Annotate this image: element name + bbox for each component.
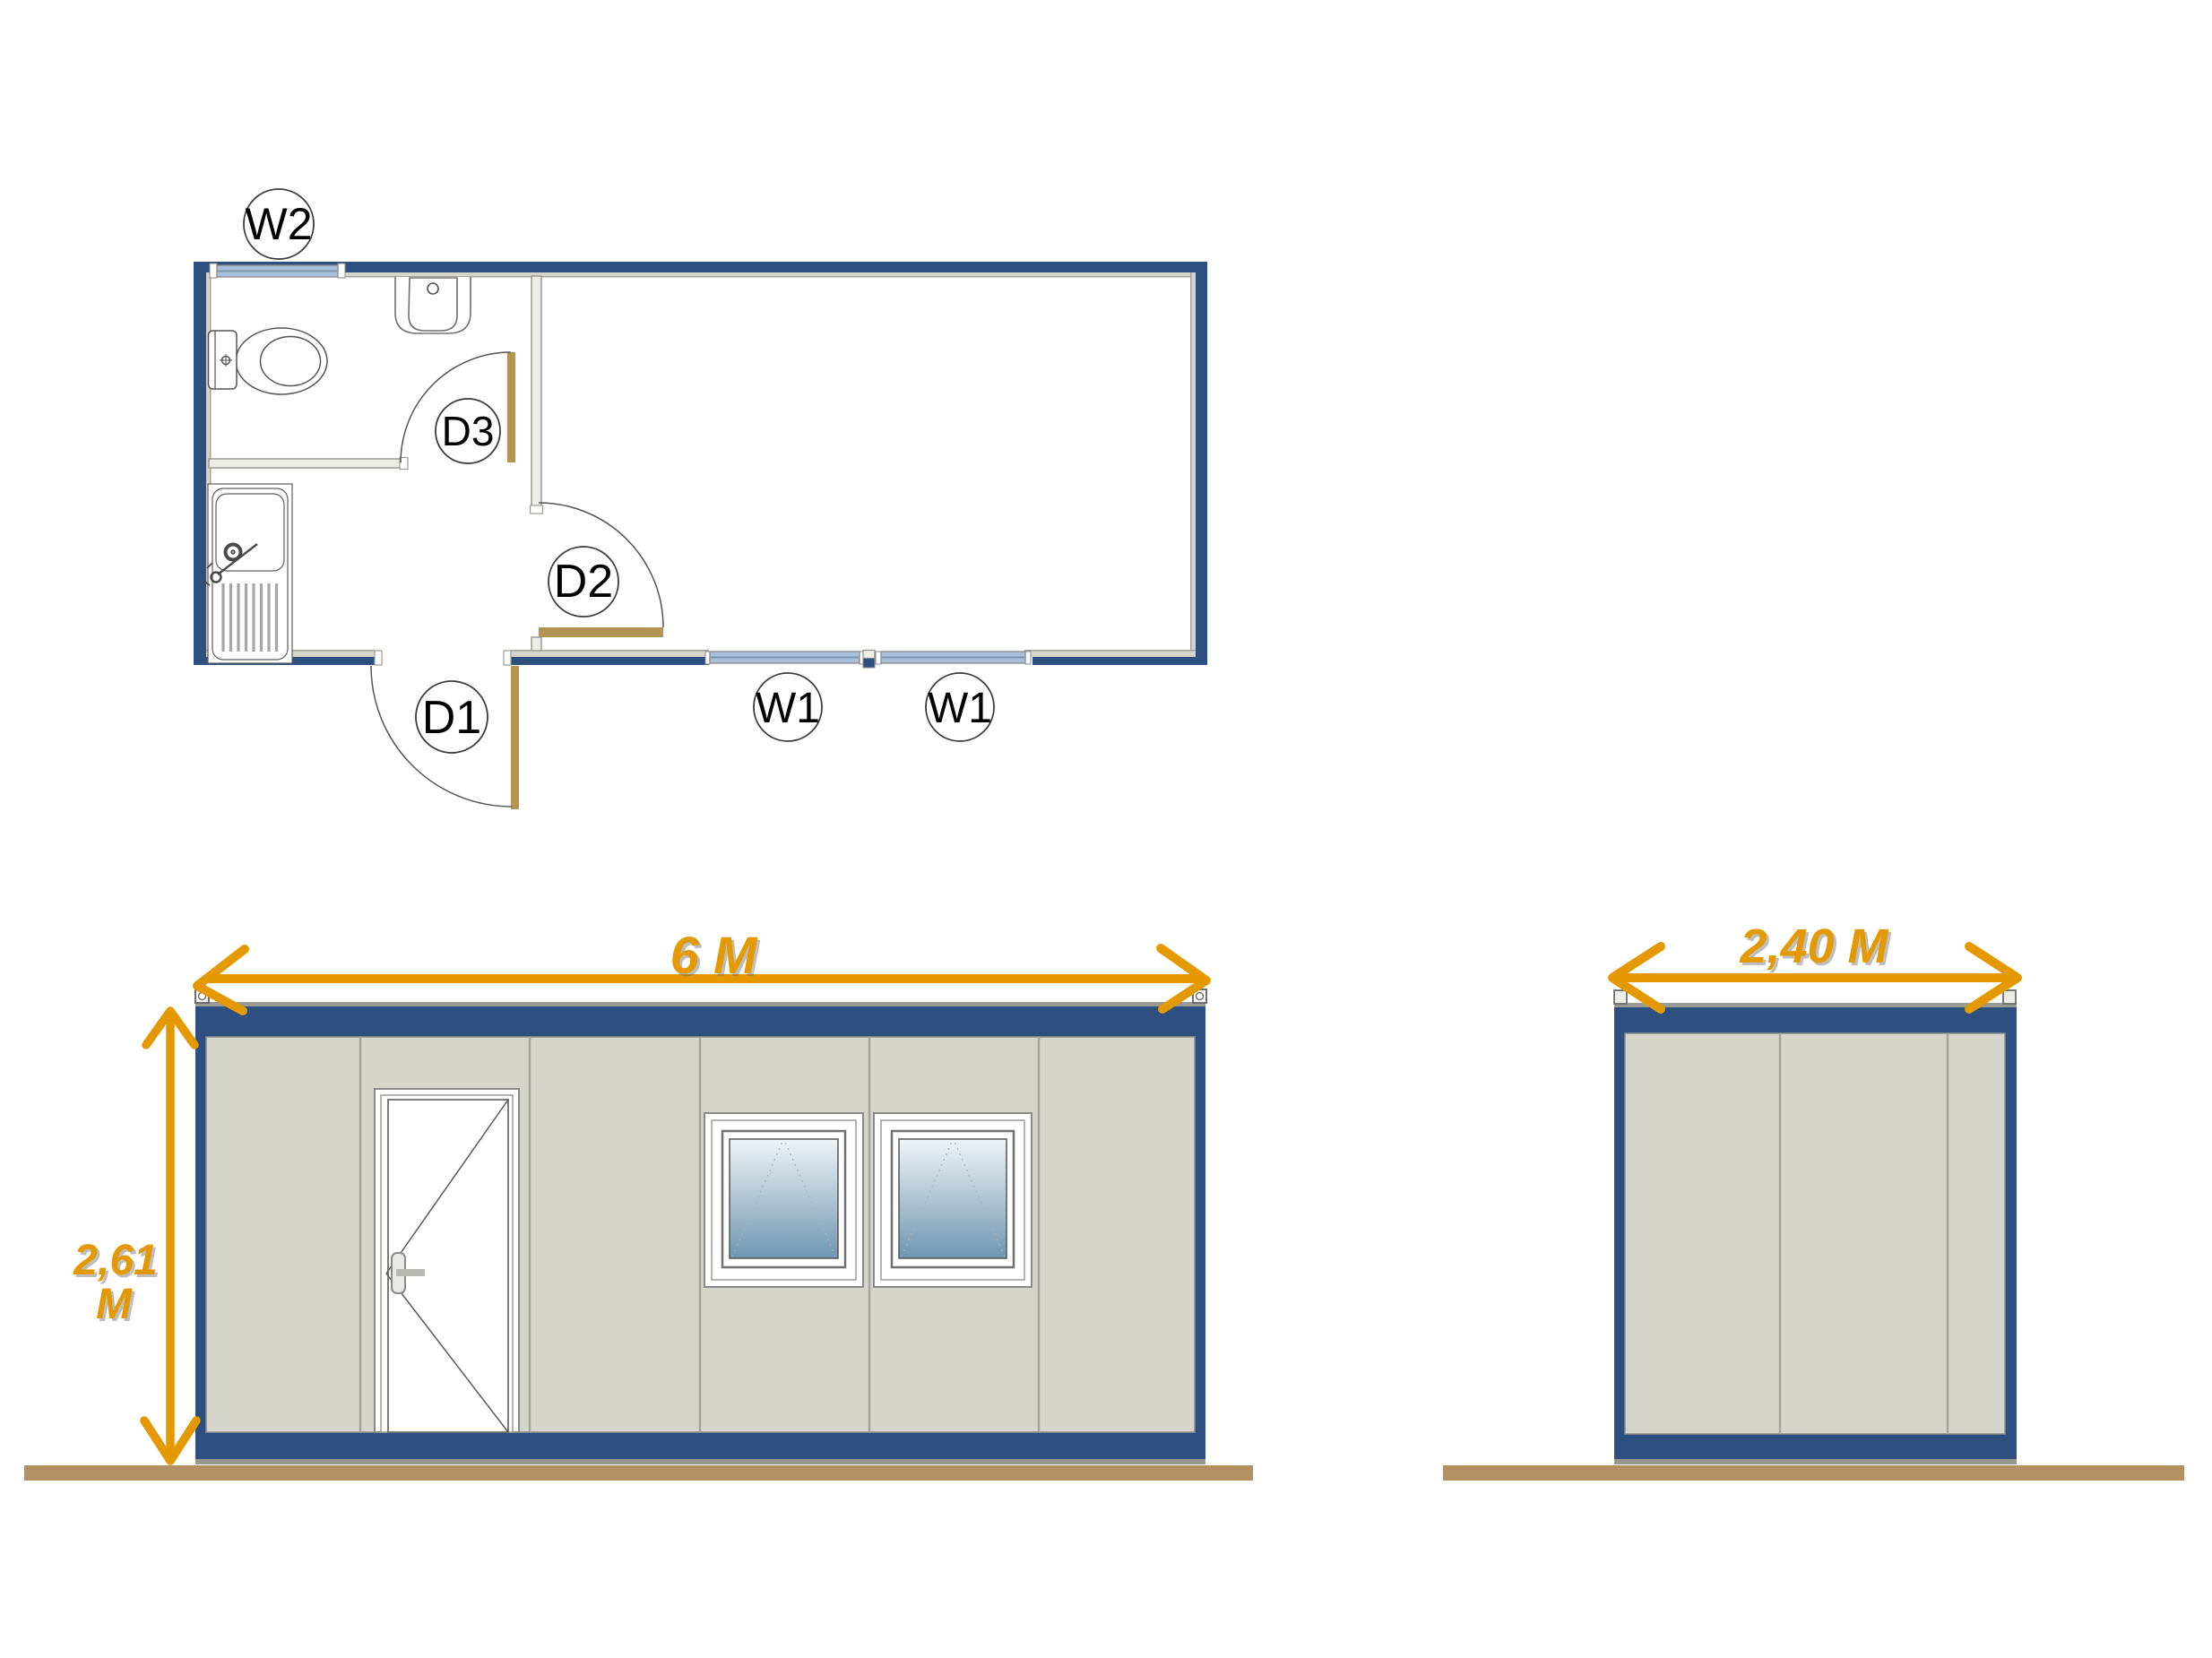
svg-text:W1: W1 — [928, 685, 992, 732]
svg-text:M: M — [96, 1281, 133, 1328]
svg-text:W2: W2 — [246, 199, 313, 249]
svg-text:D1: D1 — [422, 692, 481, 744]
svg-text:2,61: 2,61 — [73, 1237, 157, 1284]
svg-text:D2: D2 — [554, 556, 613, 608]
svg-text:D3: D3 — [442, 408, 495, 454]
svg-text:6 M: 6 M — [670, 927, 758, 985]
svg-text:W1: W1 — [756, 685, 820, 732]
svg-text:2,40 M: 2,40 M — [1739, 920, 1888, 973]
